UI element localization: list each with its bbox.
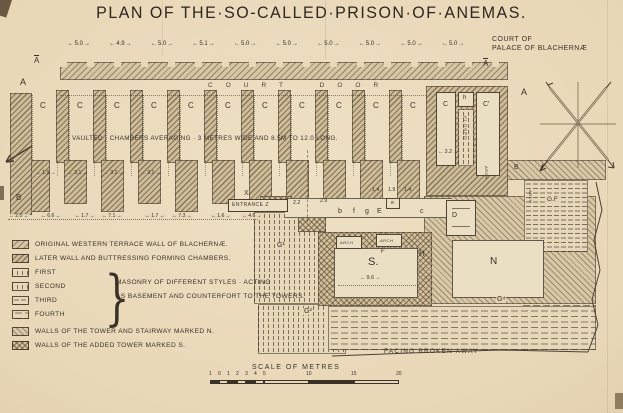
facing-note: FACING BROKEN AWAY [384, 349, 479, 356]
plan-sheet: PLAN OF THE·SO-CALLED·PRISON·OF·ANEMAS. … [0, 0, 623, 413]
wall-pier [167, 90, 180, 163]
tower-width-dim: 3.2 [438, 150, 459, 156]
paper-fold-line [162, 0, 163, 56]
buttress-pier [175, 160, 198, 212]
chamber-label: C [373, 102, 379, 110]
g4-label: G⁴ [496, 296, 506, 303]
top-dimension: 5.0 [58, 41, 100, 51]
tower-n-label: N [490, 257, 497, 267]
entrance-label: ENTRANCE Z [232, 203, 269, 208]
top-dimension: 4.9 [100, 41, 142, 51]
legend-label: LATER WALL AND BUTTRESSING FORMING CHAMB… [35, 255, 231, 262]
entrance-dimension: 2.2 [293, 201, 300, 206]
chamber-c-label: C [443, 101, 448, 108]
chamber-label: C [40, 102, 46, 110]
scale-bar: SCALE OF METRES 1012345101520 [210, 364, 410, 390]
west-wall-label: B [16, 194, 21, 202]
tower-s-label: S. [368, 257, 378, 268]
chamber-label: C [299, 102, 305, 110]
chamber-h-label: h [463, 95, 466, 101]
buttress-pier [64, 160, 87, 204]
g2-label: G² [303, 308, 313, 315]
legend-row: FOURTH [12, 309, 65, 320]
scale-segment [255, 380, 264, 384]
legend-brace-note1: MASONRY OF DIFFERENT STYLES · ACTING [116, 280, 271, 287]
top-dimension: 5.0 [308, 41, 350, 51]
scale-tick-label: 15 [351, 372, 357, 377]
scale-tick-label: 5 [263, 372, 266, 377]
legend-row: FIRST [12, 267, 56, 278]
top-dimension: 5.0 [224, 41, 266, 51]
bottom-dimension: 2.0 [8, 214, 30, 219]
scale-title: SCALE OF METRES [252, 364, 340, 371]
broken-edge-line [320, 175, 610, 360]
section-marker-a: A [483, 58, 488, 68]
b-right-label: B [514, 164, 519, 171]
upper-dimension: 1.4 [404, 188, 411, 193]
bottom-dimension: 1.7 [74, 214, 96, 219]
scale-tick-label: 3 [245, 372, 248, 377]
legend-swatch-hatchA [12, 240, 29, 249]
chamber-label: C [336, 102, 342, 110]
scale-segment [237, 380, 246, 384]
legend-row: THIRD [12, 295, 57, 306]
scale-tick-label: 2 [236, 372, 239, 377]
pier-dimension: 3.1 [68, 171, 88, 176]
arch-label: ARCH [484, 166, 488, 179]
tower-s-dim: 9.6 [360, 276, 381, 282]
wall-pier [352, 90, 365, 163]
pier-dimension: 3.1 [141, 171, 161, 176]
wall-pier [204, 90, 217, 163]
corridor-letter: f [353, 208, 355, 215]
legend-brace-note2: AS BASEMENT AND COUNTERFORT TO THE TOWER… [116, 294, 305, 301]
top-dimension: 5.0 [349, 41, 391, 51]
chamber-label: C [151, 102, 157, 110]
scale-segment [264, 380, 309, 384]
paper-fold-line [607, 0, 608, 413]
chamber-label: C [225, 102, 231, 110]
court-label-line2: PALACE OF BLACHERNÆ [492, 45, 587, 52]
bottom-dimension: 7.1 [101, 214, 123, 219]
closed-label: CLOSED [462, 116, 467, 141]
chamber-label: C [77, 102, 83, 110]
scale-segment [354, 380, 399, 384]
buttress-pier [212, 160, 235, 204]
top-dimension: 5.0 [266, 41, 308, 51]
legend: ORIGINAL WESTERN TERRACE WALL OF BLACHER… [12, 239, 292, 354]
scale-segment [246, 380, 255, 384]
legend-swatch-hdash2 [12, 310, 29, 319]
bottom-dimension: 7.3 [171, 214, 193, 219]
wall-pier [389, 90, 402, 163]
section-marker-a: A [20, 78, 26, 87]
chamber-label: C [410, 102, 416, 110]
legend-row: ORIGINAL WESTERN TERRACE WALL OF BLACHER… [12, 239, 228, 250]
upper-dimension: 1.9 [388, 188, 395, 193]
top-dimension: 5.0 [391, 41, 433, 51]
bottom-dimension: 1.6 [210, 214, 232, 219]
top-dimension-row: 5.04.95.05.15.05.05.05.05.05.0 [58, 41, 474, 51]
tower-s-f-label: F [381, 249, 385, 255]
section-dash-line [307, 150, 308, 222]
scale-tick-label: 1 [227, 372, 230, 377]
legend-label: THIRD [35, 297, 57, 304]
scale-tick-label: 1 [209, 372, 212, 377]
chamber-label: C [114, 102, 120, 110]
page-title: PLAN OF THE·SO-CALLED·PRISON·OF·ANEMAS. [0, 6, 623, 23]
section-marker-a: A [34, 55, 39, 65]
chamber-label: C [262, 102, 268, 110]
tower-d-label: D [452, 212, 457, 219]
corridor-letter: g [365, 208, 369, 215]
buttress-pier [101, 160, 124, 212]
legend-swatch-check [12, 341, 29, 350]
wall-pier [56, 90, 69, 163]
h-mark-label: H [419, 250, 425, 258]
entrance-box: ENTRANCE Z [228, 199, 288, 212]
arch-label: ARCH [528, 190, 532, 203]
terrace-wall-crenellation [60, 62, 508, 67]
wall-pier [315, 90, 328, 163]
upper-dimension: 1.4 [372, 188, 379, 193]
pier-dimension: 3.1 [104, 171, 124, 176]
chamber-label: C [188, 102, 194, 110]
entrance-x-mark: X [244, 190, 249, 197]
scale-tick-label: 4 [254, 372, 257, 377]
wall-pier [241, 90, 254, 163]
corridor-letter: b [338, 208, 342, 215]
scale-tick-label: 20 [396, 372, 402, 377]
top-dimension: 5.0 [432, 41, 474, 51]
bottom-dimension: 4.6 [241, 214, 263, 219]
wall-pier [93, 90, 106, 163]
wall-pier [278, 90, 291, 163]
legend-swatch-vdash [12, 268, 29, 277]
corridor-letter: E [377, 208, 382, 215]
court-door-label: COURT DOOR [208, 83, 391, 90]
scale-tick-label: 0 [218, 372, 221, 377]
legend-label: FIRST [35, 269, 56, 276]
legend-swatch-hatchB [12, 254, 29, 263]
court-label: COURT OF PALACE OF BLACHERNÆ [492, 36, 587, 52]
legend-row: SECOND [12, 281, 66, 292]
chamber-c-prime-label: C′ [483, 101, 489, 108]
bottom-dimension: 6.6 [40, 214, 62, 219]
legend-label: FOURTH [35, 311, 65, 318]
legend-label: SECOND [35, 283, 66, 290]
gf-label: G.F [546, 197, 559, 204]
legend-swatch-hdash [12, 296, 29, 305]
west-arrow-icon [0, 142, 34, 168]
buttress-pier [138, 160, 161, 204]
scale-bar-body: 1012345101520 [210, 374, 410, 390]
legend-row: WALLS OF THE ADDED TOWER MARKED S. [12, 340, 185, 351]
legend-label: WALLS OF THE ADDED TOWER MARKED S. [35, 342, 185, 349]
scale-segment [219, 380, 228, 384]
corridor-letter: c [420, 208, 424, 215]
entrance-dimension: 2.9 [320, 199, 327, 204]
top-dimension: 5.1 [183, 41, 225, 51]
wall-pier [130, 90, 143, 163]
paper-fold-line [325, 0, 326, 60]
court-label-line1: COURT OF [492, 36, 587, 43]
scale-segment [309, 380, 354, 384]
bottom-dimension: 1.7 [144, 214, 166, 219]
scale-tick-label: 10 [306, 372, 312, 377]
chambers-note: VAULTED · CHAMBERS AVERAGING · 3 METRES … [72, 136, 338, 142]
pier-dimension: 1.9 [36, 171, 56, 176]
scale-segment [228, 380, 237, 384]
section-marker-a: A [521, 88, 527, 97]
scale-segment [210, 380, 219, 384]
legend-label: ORIGINAL WESTERN TERRACE WALL OF BLACHER… [35, 241, 228, 248]
legend-swatch-hatchN [12, 327, 29, 336]
legend-swatch-vdash [12, 282, 29, 291]
